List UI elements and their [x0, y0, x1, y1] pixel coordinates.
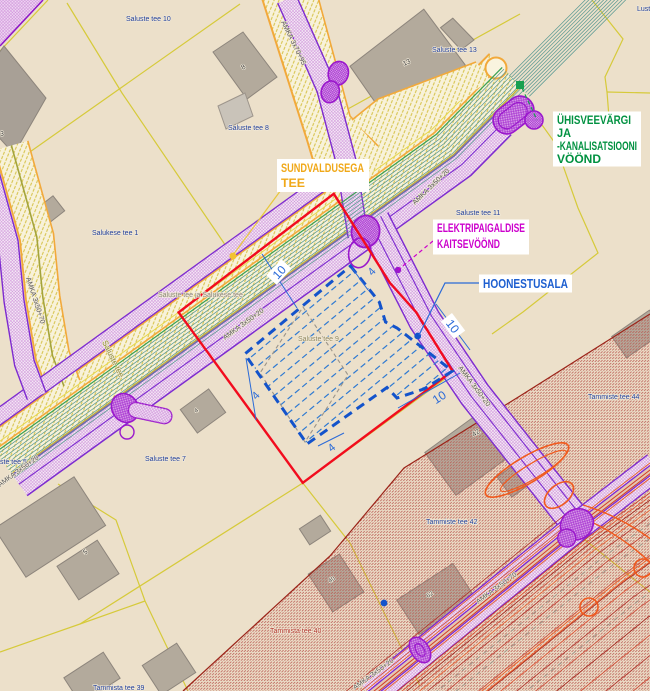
svg-text:Tammiste tee 42: Tammiste tee 42 — [426, 519, 477, 526]
svg-text:Saluste tee 7: Saluste tee 7 — [145, 456, 186, 463]
svg-text:Tammiste tee 44: Tammiste tee 44 — [588, 394, 639, 401]
svg-text:Lusti: Lusti — [637, 6, 650, 13]
svg-text:Saluste tee ja Salukese tee: Saluste tee ja Salukese tee — [158, 292, 243, 299]
svg-text:Tammista tee 40: Tammista tee 40 — [270, 628, 321, 635]
svg-text:JA: JA — [557, 128, 571, 140]
svg-text:TEE: TEE — [281, 176, 305, 190]
svg-text:ÜHISVEEVÄRGI: ÜHISVEEVÄRGI — [557, 114, 631, 127]
svg-text:ELEKTRIPAIGALDISE: ELEKTRIPAIGALDISE — [437, 223, 525, 235]
svg-text:Tammista tee 39: Tammista tee 39 — [93, 685, 144, 691]
svg-text:HOONESTUSALA: HOONESTUSALA — [483, 277, 568, 291]
svg-text:Saluste tee 10: Saluste tee 10 — [126, 16, 171, 23]
svg-text:Saluste tee 8: Saluste tee 8 — [228, 125, 269, 132]
svg-text:Saluste tee 11: Saluste tee 11 — [456, 210, 500, 217]
svg-text:SUNDVALDUSEGA: SUNDVALDUSEGA — [281, 161, 364, 175]
svg-text:Salukese tee 1: Salukese tee 1 — [92, 230, 138, 237]
svg-text:3: 3 — [0, 131, 4, 138]
svg-text:KAITSEVÖÖND: KAITSEVÖÖND — [437, 238, 500, 251]
svg-text:Saluste tee 9: Saluste tee 9 — [298, 336, 339, 343]
svg-text:Saluste tee 13: Saluste tee 13 — [432, 47, 477, 54]
svg-text:VÖÖND: VÖÖND — [557, 153, 601, 166]
svg-text:-KANALISATSIOONI: -KANALISATSIOONI — [557, 141, 637, 153]
